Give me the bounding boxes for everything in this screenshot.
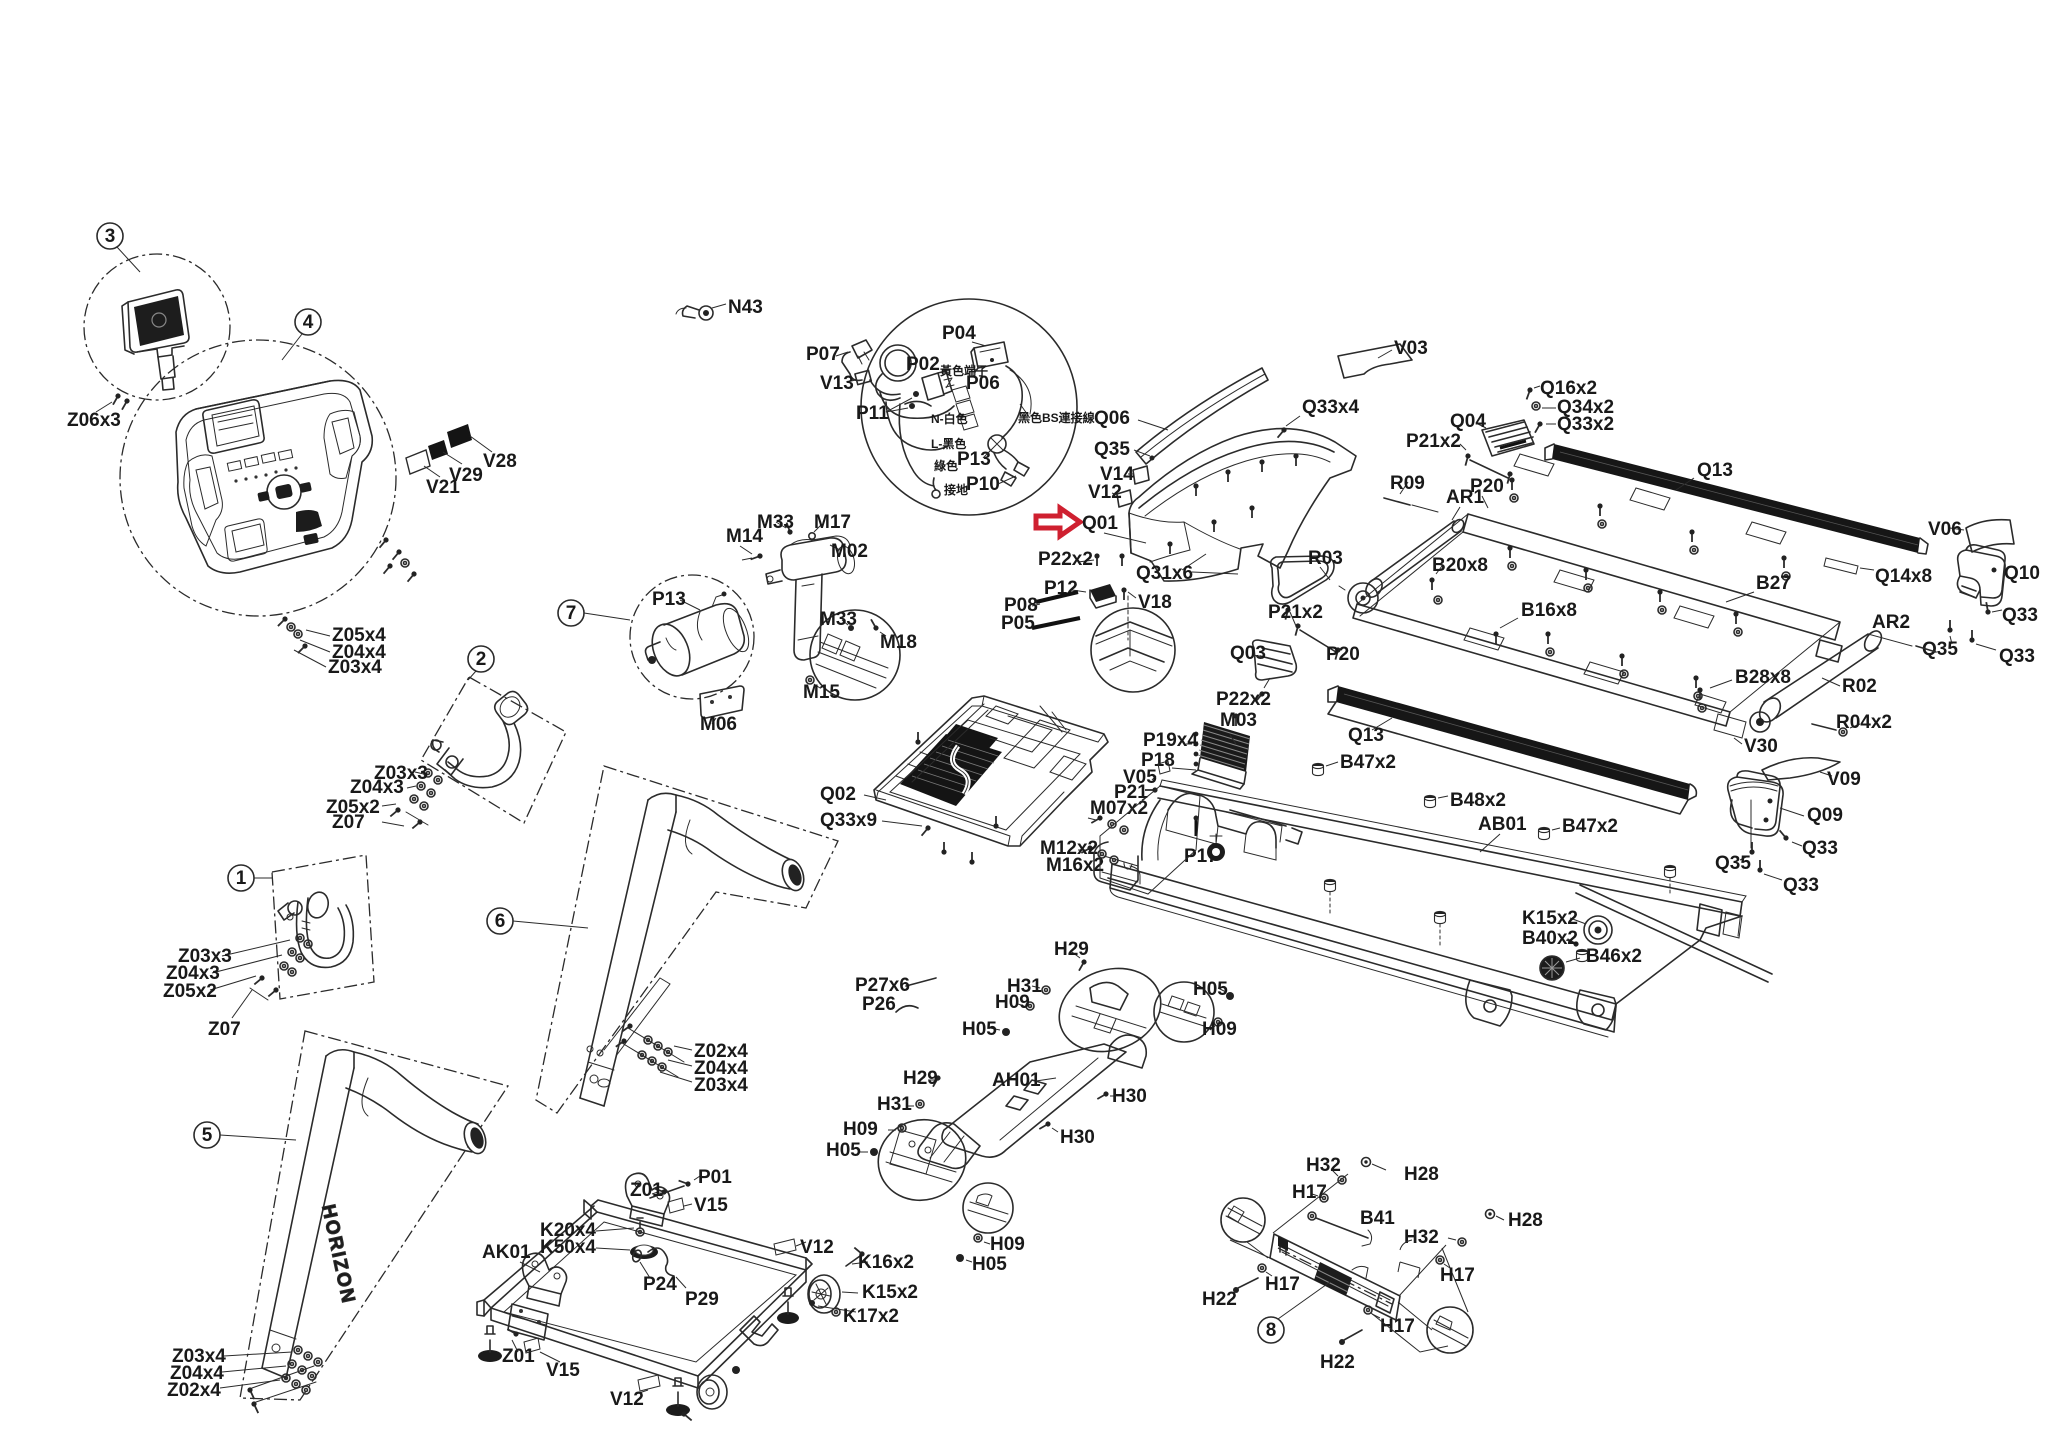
svg-text:R04x2: R04x2 — [1836, 712, 1892, 733]
svg-text:AB01: AB01 — [1478, 814, 1527, 835]
svg-text:P13: P13 — [652, 589, 686, 610]
svg-text:M14: M14 — [726, 526, 763, 547]
svg-text:Q33: Q33 — [1999, 646, 2035, 667]
svg-text:H28: H28 — [1508, 1210, 1543, 1231]
svg-text:P27x6: P27x6 — [855, 975, 910, 996]
svg-text:M06: M06 — [700, 714, 737, 735]
svg-text:V15: V15 — [546, 1360, 580, 1381]
svg-text:H30: H30 — [1060, 1127, 1095, 1148]
svg-text:L-黑色: L-黑色 — [931, 436, 966, 451]
svg-text:M18: M18 — [880, 632, 917, 653]
svg-text:V09: V09 — [1827, 769, 1861, 790]
svg-text:Q14x8: Q14x8 — [1875, 566, 1932, 587]
svg-text:Z07: Z07 — [332, 812, 365, 833]
svg-text:K16x2: K16x2 — [858, 1252, 914, 1273]
svg-text:Z03x4: Z03x4 — [328, 657, 382, 678]
svg-text:Z06x3: Z06x3 — [67, 410, 121, 431]
svg-text:P29: P29 — [685, 1289, 719, 1310]
svg-text:Q35: Q35 — [1715, 853, 1751, 874]
svg-text:M07x2: M07x2 — [1090, 798, 1148, 819]
svg-text:P21x2: P21x2 — [1268, 602, 1323, 623]
svg-text:M16x2: M16x2 — [1046, 855, 1104, 876]
svg-text:7: 7 — [566, 603, 577, 624]
svg-text:Q01: Q01 — [1082, 513, 1118, 534]
svg-text:K15x2: K15x2 — [1522, 908, 1578, 929]
svg-text:P20: P20 — [1470, 476, 1504, 497]
svg-text:H32: H32 — [1404, 1227, 1439, 1248]
svg-text:6: 6 — [495, 911, 506, 932]
svg-text:Q09: Q09 — [1807, 805, 1843, 826]
svg-text:Q13: Q13 — [1697, 460, 1733, 481]
svg-text:4: 4 — [303, 312, 314, 333]
svg-text:V15: V15 — [694, 1195, 728, 1216]
svg-text:H09: H09 — [843, 1119, 878, 1140]
svg-text:B46x2: B46x2 — [1586, 946, 1642, 967]
svg-text:Q06: Q06 — [1094, 408, 1130, 429]
svg-text:H05: H05 — [962, 1019, 997, 1040]
svg-text:M33: M33 — [820, 609, 857, 630]
svg-text:V13: V13 — [820, 373, 854, 394]
svg-text:Q13: Q13 — [1348, 725, 1384, 746]
svg-text:H31: H31 — [877, 1094, 912, 1115]
svg-text:M02: M02 — [831, 541, 868, 562]
svg-text:P26: P26 — [862, 994, 896, 1015]
svg-text:P04: P04 — [942, 323, 976, 344]
svg-text:AK01: AK01 — [482, 1242, 531, 1263]
svg-text:Q33: Q33 — [1783, 875, 1819, 896]
svg-text:H17: H17 — [1440, 1265, 1475, 1286]
svg-text:P19x4: P19x4 — [1143, 730, 1198, 751]
svg-text:H22: H22 — [1320, 1352, 1355, 1373]
svg-text:H09: H09 — [1202, 1019, 1237, 1040]
svg-text:H09: H09 — [990, 1234, 1025, 1255]
svg-text:H09: H09 — [995, 992, 1030, 1013]
svg-text:V12: V12 — [610, 1389, 644, 1410]
svg-text:V06: V06 — [1928, 519, 1962, 540]
svg-text:Z05x2: Z05x2 — [163, 981, 217, 1002]
svg-text:V21: V21 — [426, 477, 460, 498]
svg-text:H05: H05 — [972, 1254, 1007, 1275]
svg-text:AR2: AR2 — [1872, 612, 1910, 633]
svg-text:H17: H17 — [1292, 1182, 1327, 1203]
svg-text:Q33x4: Q33x4 — [1302, 397, 1359, 418]
svg-text:5: 5 — [202, 1125, 213, 1146]
svg-text:M17: M17 — [814, 512, 851, 533]
svg-text:Z01: Z01 — [630, 1180, 663, 1201]
svg-text:2: 2 — [476, 649, 487, 670]
svg-text:H05: H05 — [826, 1140, 861, 1161]
svg-text:Q35: Q35 — [1094, 439, 1130, 460]
svg-text:Z01: Z01 — [502, 1346, 535, 1367]
svg-text:P11: P11 — [856, 403, 889, 424]
svg-text:P13: P13 — [957, 449, 991, 470]
svg-text:Q16x2: Q16x2 — [1540, 378, 1597, 399]
svg-text:V12: V12 — [800, 1237, 834, 1258]
svg-text:B47x2: B47x2 — [1562, 816, 1618, 837]
svg-text:3: 3 — [105, 226, 116, 247]
svg-text:AH01: AH01 — [992, 1070, 1041, 1091]
svg-text:8: 8 — [1266, 1320, 1277, 1341]
svg-text:Z02x4: Z02x4 — [167, 1380, 221, 1401]
svg-text:H17: H17 — [1265, 1274, 1300, 1295]
svg-text:B41: B41 — [1360, 1208, 1395, 1229]
svg-text:K17x2: K17x2 — [843, 1306, 899, 1327]
svg-text:Q31x6: Q31x6 — [1136, 563, 1193, 584]
svg-text:接地: 接地 — [944, 482, 968, 497]
svg-text:V12: V12 — [1088, 482, 1122, 503]
svg-text:H32: H32 — [1306, 1155, 1341, 1176]
svg-text:P10: P10 — [966, 474, 1000, 495]
svg-text:K50x4: K50x4 — [540, 1237, 596, 1258]
svg-text:R09: R09 — [1390, 473, 1425, 494]
svg-text:B27: B27 — [1756, 573, 1791, 594]
svg-text:Q03: Q03 — [1230, 643, 1266, 664]
svg-text:Q02: Q02 — [820, 784, 856, 805]
svg-text:B20x8: B20x8 — [1432, 555, 1488, 576]
svg-text:P07: P07 — [806, 344, 840, 365]
svg-text:Q33: Q33 — [1802, 838, 1838, 859]
svg-text:H28: H28 — [1404, 1164, 1439, 1185]
svg-text:Q33: Q33 — [2002, 605, 2038, 626]
svg-text:H29: H29 — [903, 1068, 938, 1089]
svg-text:M03: M03 — [1220, 710, 1257, 731]
svg-text:Z04x3: Z04x3 — [350, 777, 404, 798]
svg-text:綠色: 綠色 — [934, 458, 958, 473]
svg-text:H22: H22 — [1202, 1289, 1237, 1310]
svg-text:P21x2: P21x2 — [1406, 431, 1461, 452]
svg-text:P02: P02 — [906, 354, 940, 375]
svg-text:R02: R02 — [1842, 676, 1877, 697]
svg-text:Z03x4: Z03x4 — [694, 1075, 748, 1096]
svg-text:P01: P01 — [698, 1167, 732, 1188]
svg-text:H30: H30 — [1112, 1086, 1147, 1107]
svg-text:B48x2: B48x2 — [1450, 790, 1506, 811]
svg-text:P22x2: P22x2 — [1038, 549, 1093, 570]
svg-text:P22x2: P22x2 — [1216, 689, 1271, 710]
svg-text:B40x2: B40x2 — [1522, 928, 1578, 949]
svg-text:V28: V28 — [483, 451, 517, 472]
svg-text:M15: M15 — [803, 682, 840, 703]
svg-text:Z07: Z07 — [208, 1019, 241, 1040]
svg-text:R03: R03 — [1308, 548, 1343, 569]
svg-text:黃色端子: 黃色端子 — [939, 363, 988, 378]
svg-text:P05: P05 — [1001, 613, 1035, 634]
svg-text:Q33x2: Q33x2 — [1557, 414, 1614, 435]
svg-text:P20: P20 — [1326, 644, 1360, 665]
svg-text:B16x8: B16x8 — [1521, 600, 1577, 621]
svg-text:Q04: Q04 — [1450, 411, 1486, 432]
svg-text:V30: V30 — [1744, 736, 1778, 757]
svg-text:Q10: Q10 — [2004, 563, 2040, 584]
svg-text:N-白色: N-白色 — [931, 411, 968, 426]
svg-text:H29: H29 — [1054, 939, 1089, 960]
svg-text:1: 1 — [236, 868, 247, 889]
svg-text:H05: H05 — [1193, 979, 1228, 1000]
svg-text:V03: V03 — [1394, 338, 1428, 359]
svg-text:Q33x9: Q33x9 — [820, 810, 877, 831]
svg-text:B47x2: B47x2 — [1340, 752, 1396, 773]
svg-text:B28x8: B28x8 — [1735, 667, 1791, 688]
svg-text:K15x2: K15x2 — [862, 1282, 918, 1303]
svg-text:N43: N43 — [728, 297, 763, 318]
svg-text:P24: P24 — [643, 1274, 677, 1295]
